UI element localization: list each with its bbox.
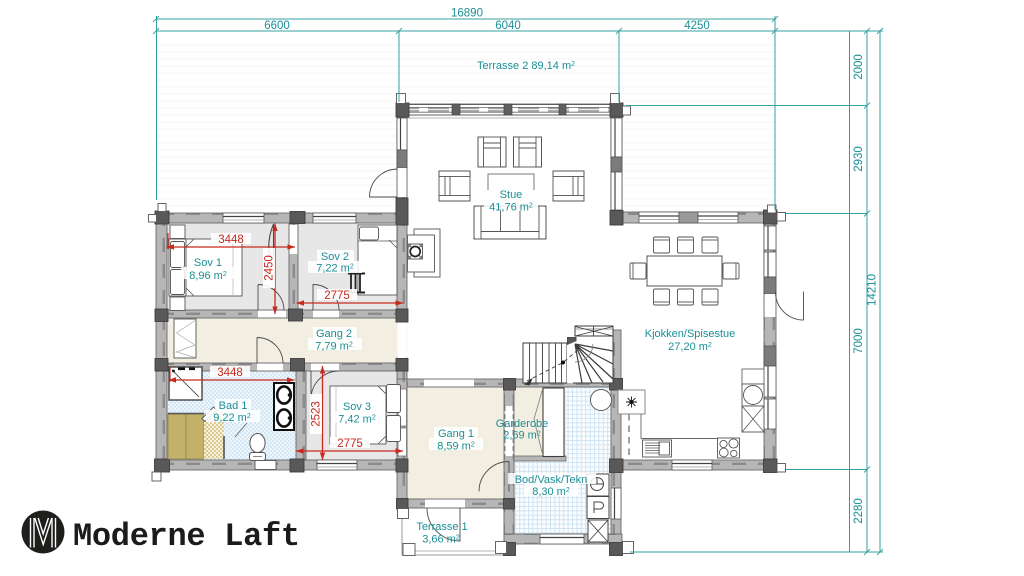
- svg-text:Gang 1: Gang 1: [438, 428, 474, 440]
- svg-text:Stue: Stue: [500, 189, 523, 201]
- svg-text:41,76 m2: 41,76 m2: [489, 202, 533, 214]
- svg-text:8,96 m2: 8,96 m2: [189, 270, 227, 282]
- svg-text:16890: 16890: [451, 8, 483, 20]
- svg-text:Garderobe: Garderobe: [496, 418, 549, 430]
- svg-text:Terrasse 1: Terrasse 1: [416, 521, 467, 533]
- svg-text:6040: 6040: [495, 20, 521, 32]
- svg-text:2280: 2280: [853, 498, 865, 524]
- svg-text:14210: 14210: [867, 274, 879, 306]
- svg-text:Sov 1: Sov 1: [194, 257, 222, 269]
- svg-text:Sov 2: Sov 2: [321, 251, 349, 263]
- svg-text:Sov 3: Sov 3: [343, 401, 371, 413]
- svg-text:7,42 m2: 7,42 m2: [338, 414, 376, 426]
- svg-text:3,66 m2: 3,66 m2: [422, 534, 460, 546]
- svg-text:9,22 m2: 9,22 m2: [213, 412, 251, 424]
- svg-text:2,69 m2: 2,69 m2: [503, 430, 541, 442]
- svg-text:7000: 7000: [853, 328, 865, 354]
- svg-text:3448: 3448: [217, 367, 243, 379]
- svg-text:Kjokken/Spisestue: Kjokken/Spisestue: [645, 328, 736, 340]
- svg-text:Bad 1: Bad 1: [219, 400, 248, 412]
- svg-text:7,22 m2: 7,22 m2: [316, 263, 354, 275]
- svg-text:2775: 2775: [324, 290, 350, 302]
- svg-text:Bod/Vask/Tekn: Bod/Vask/Tekn: [515, 474, 588, 486]
- svg-text:7,79 m2: 7,79 m2: [315, 341, 353, 353]
- svg-text:2450: 2450: [264, 255, 276, 281]
- svg-text:Terrasse 2 89,14 m2: Terrasse 2 89,14 m2: [477, 60, 575, 72]
- svg-text:2930: 2930: [853, 146, 865, 172]
- svg-text:Gang 2: Gang 2: [316, 328, 352, 340]
- svg-text:2775: 2775: [337, 438, 363, 450]
- svg-text:2523: 2523: [311, 401, 323, 427]
- svg-text:8,30 m2: 8,30 m2: [532, 486, 570, 498]
- svg-text:4250: 4250: [684, 20, 710, 32]
- svg-text:3448: 3448: [218, 234, 244, 246]
- svg-text:Moderne Laft: Moderne Laft: [73, 518, 300, 555]
- svg-text:8,59 m2: 8,59 m2: [437, 441, 475, 453]
- svg-text:27,20 m2: 27,20 m2: [668, 341, 712, 353]
- svg-text:2000: 2000: [853, 54, 865, 80]
- svg-text:6600: 6600: [264, 20, 290, 32]
